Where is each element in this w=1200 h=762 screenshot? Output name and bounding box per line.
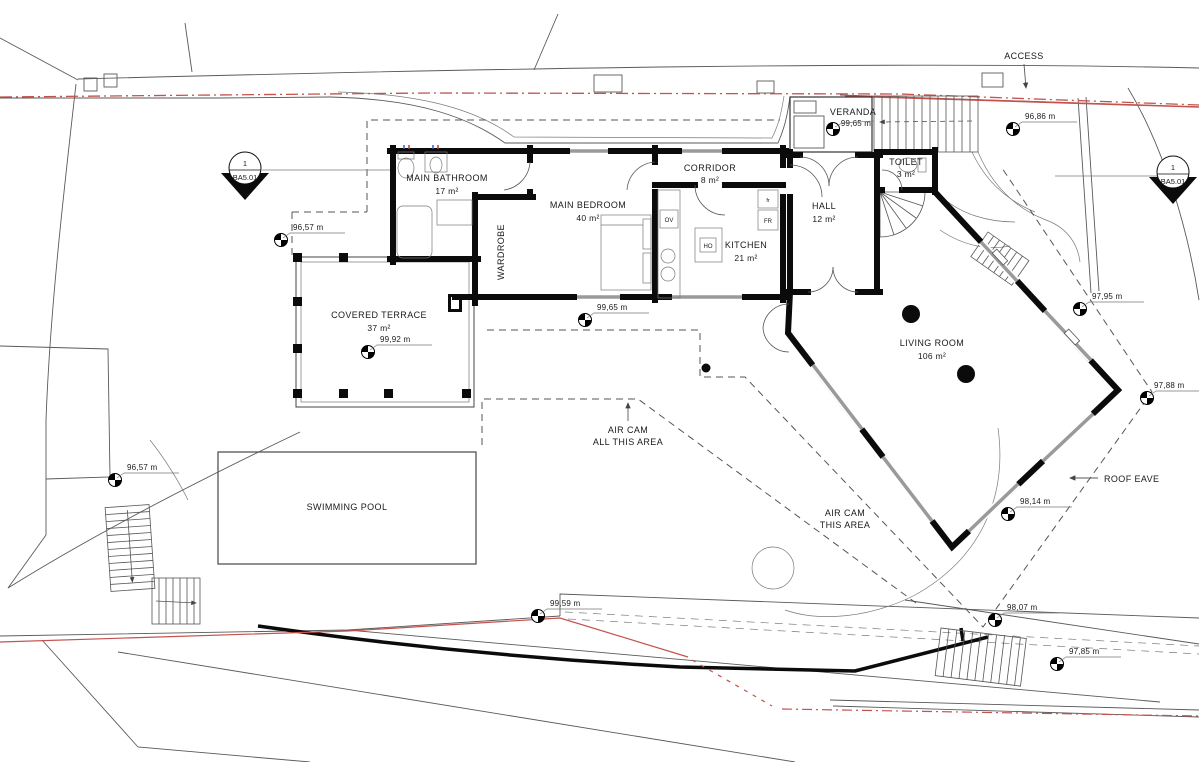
svg-text:98,07 m: 98,07 m [1007,603,1037,612]
svg-text:ALL THIS AREA: ALL THIS AREA [593,437,663,447]
veranda-label: VERANDA [830,107,876,117]
covered-terrace-label: COVERED TERRACE [331,310,427,320]
oven-label: OV [665,218,674,224]
main-bedroom-area: 40 m² [576,213,599,223]
svg-text:THIS AREA: THIS AREA [820,520,871,530]
roof-eave-lines [292,120,1152,627]
covered-terrace: COVERED TERRACE 37 m² [293,253,474,407]
bedroom-furniture [601,215,651,290]
benchmark-eave-e: 97,88 m [1141,381,1200,405]
section-marker-east: 1 BA5.01 [1055,156,1197,204]
building: OV HO fr FR [390,97,1118,547]
covered-terrace-area: 37 m² [367,323,390,333]
tree [752,547,794,589]
main-bathroom-label: MAIN BATHROOM [406,173,488,183]
column [957,365,975,383]
hall-label: HALL [812,201,836,211]
stairs-access [874,96,978,152]
main-bedroom-label: MAIN BEDROOM [550,200,626,210]
wardrobe-label: WARDROBE [496,224,506,280]
hob-label: HO [704,244,713,250]
benchmark-living-ne: 97,95 m [1074,292,1145,316]
benchmark-stairs-w: 96,57 m [109,463,180,487]
swimming-pool: SWIMMING POOL [218,452,476,564]
toilet-label: TOILET [889,157,923,167]
living-room-area: 106 m² [918,351,946,361]
fridge-label: FR [764,219,773,225]
toilet-area: 3 m² [897,169,915,179]
stairs-southeast [935,628,1026,686]
corridor-area: 8 m² [701,175,719,185]
svg-text:AIR CAM: AIR CAM [825,508,865,518]
benchmark-terrace-nw: 96,57 m [275,223,346,247]
svg-text:97,88 m: 97,88 m [1154,381,1184,390]
retaining-wall [258,626,988,671]
main-bathroom-area: 17 m² [435,186,458,196]
benchmark-stairs-se: 97,85 m [1051,647,1122,671]
svg-text:99,65 m: 99,65 m [597,303,627,312]
benchmark-bedroom-s: 99,65 m [579,303,650,327]
svg-text:96,57 m: 96,57 m [293,223,323,232]
walls [390,148,1118,547]
svg-text:98,14 m: 98,14 m [1020,497,1050,506]
section-number: 1 [243,159,247,168]
access-label: ACCESS [1004,51,1043,61]
doors [504,157,902,352]
floor-plan-drawing: SWIMMING POOL COVERED TERRACE 37 m² [0,0,1200,762]
svg-text:97,85 m: 97,85 m [1069,647,1099,656]
room-labels: MAIN BATHROOM 17 m² MAIN BEDROOM 40 m² W… [406,107,964,361]
fridge-small-label: fr [766,198,770,204]
svg-text:97,95 m: 97,95 m [1092,292,1122,301]
corridor-label: CORRIDOR [684,163,736,173]
veranda-level: 99,65 m [841,119,871,128]
floor-plan-sheet: SWIMMING POOL COVERED TERRACE 37 m² [0,0,1200,762]
roof-eave-label: ROOF EAVE [1104,474,1159,484]
svg-text:99,92 m: 99,92 m [380,335,410,344]
benchmark-terrace: 99,92 m [362,335,433,359]
benchmark-living-se: 98,14 m [1002,497,1073,521]
living-room-label: LIVING ROOM [900,338,964,348]
svg-text:96,86 m: 96,86 m [1025,112,1055,121]
stairs-spiral [880,192,925,237]
air-cam-this-label: AIR CAM THIS AREA [820,508,871,530]
bathroom-fixtures [397,145,472,258]
svg-text:99,59 m: 99,59 m [550,599,580,608]
column-small [702,364,711,373]
section-marker-west: 1 BA5.01 [221,152,390,200]
stairs-west [105,505,200,624]
kitchen-area: 21 m² [734,253,757,263]
section-number: 1 [1171,163,1175,172]
column [902,305,920,323]
benchmark-access-e: 96,86 m [1007,112,1078,136]
swimming-pool-label: SWIMMING POOL [307,502,388,512]
benchmark-path-s: 98,07 m [989,603,1060,627]
section-sheet: BA5.01 [233,173,258,182]
kitchen-label: KITCHEN [725,240,767,250]
svg-text:96,57 m: 96,57 m [127,463,157,472]
hall-area: 12 m² [812,214,835,224]
svg-text:AIR CAM: AIR CAM [608,425,648,435]
section-sheet: BA5.01 [1161,177,1186,186]
benchmark-wall-s: 99,59 m [532,599,603,623]
